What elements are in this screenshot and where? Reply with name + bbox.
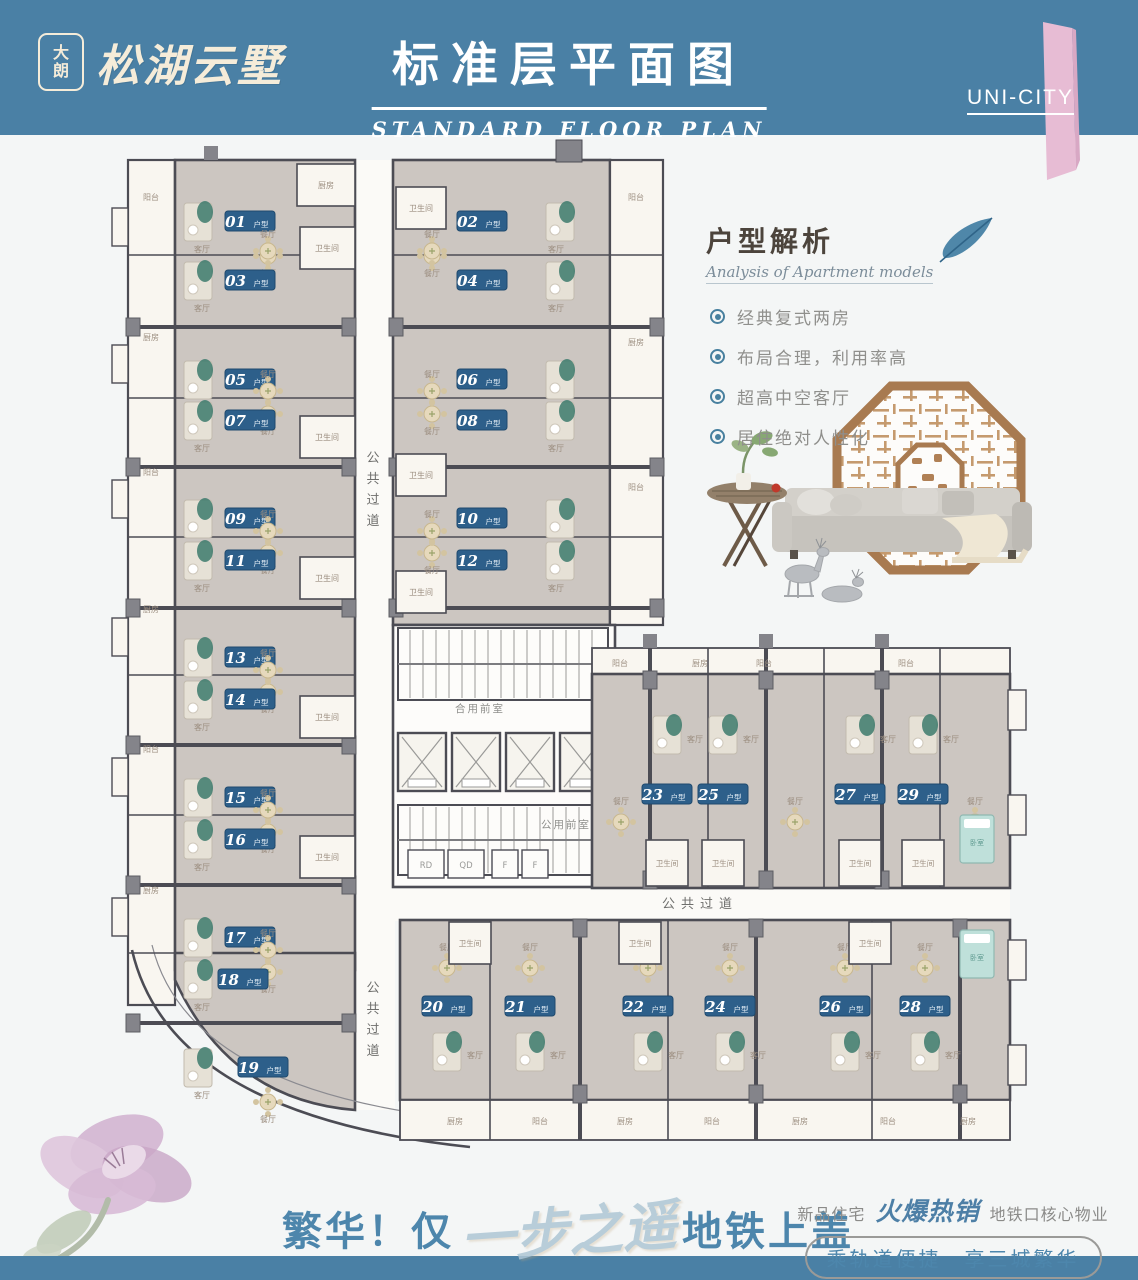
svg-text:户型: 户型	[254, 278, 269, 288]
svg-text:餐厅: 餐厅	[424, 269, 440, 278]
svg-text:12: 12	[457, 552, 478, 570]
svg-text:餐厅: 餐厅	[424, 427, 440, 436]
svg-text:客厅: 客厅	[467, 1050, 483, 1060]
svg-text:户型: 户型	[727, 792, 742, 802]
svg-text:17: 17	[225, 929, 246, 947]
svg-text:24: 24	[704, 998, 726, 1016]
svg-text:卫生间: 卫生间	[849, 858, 872, 868]
svg-text:户型: 户型	[652, 1004, 667, 1014]
logo-badge-icon: 大 朗	[38, 33, 84, 91]
svg-text:共: 共	[366, 1002, 379, 1017]
svg-text:14: 14	[225, 691, 246, 709]
svg-text:客厅: 客厅	[194, 303, 210, 313]
svg-text:公: 公	[366, 981, 379, 996]
svg-text:餐厅: 餐厅	[260, 370, 276, 379]
sofa-glyph	[184, 400, 213, 440]
svg-text:户型: 户型	[247, 977, 262, 987]
svg-text:餐厅: 餐厅	[260, 789, 276, 798]
svg-text:户型: 户型	[927, 792, 942, 802]
svg-text:阳台: 阳台	[898, 658, 914, 668]
svg-text:厨房: 厨房	[960, 1116, 976, 1126]
svg-text:阳台: 阳台	[143, 192, 159, 202]
svg-text:阳台: 阳台	[143, 467, 159, 477]
svg-text:户型: 户型	[734, 1004, 749, 1014]
svg-text:户型: 户型	[486, 377, 501, 387]
bottom-tagline: 繁华！仅 一步之遥 地铁上盖	[282, 1188, 854, 1267]
tagline-script: 一步之遥	[458, 1181, 679, 1275]
svg-text:客厅: 客厅	[750, 1050, 766, 1060]
svg-text:餐厅: 餐厅	[424, 370, 440, 379]
svg-text:户型: 户型	[451, 1004, 466, 1014]
promo-suffix: 地铁口核心物业	[990, 1205, 1109, 1224]
sofa-glyph	[184, 498, 213, 538]
svg-text:餐厅: 餐厅	[260, 230, 276, 239]
svg-text:客厅: 客厅	[945, 1050, 961, 1060]
promo-prefix: 新品住宅	[797, 1205, 865, 1224]
svg-text:客厅: 客厅	[194, 722, 210, 732]
svg-text:08: 08	[457, 412, 478, 430]
uni-city-label: UNI-CITY	[967, 86, 1074, 115]
svg-text:道: 道	[366, 514, 379, 529]
svg-text:卫生间: 卫生间	[409, 470, 433, 480]
sofa-glyph	[184, 1047, 213, 1087]
svg-text:阳台: 阳台	[628, 192, 644, 202]
svg-text:厨房: 厨房	[628, 337, 644, 347]
svg-text:客厅: 客厅	[550, 1050, 566, 1060]
analysis-bullet: 居住绝对人性化	[710, 424, 986, 449]
svg-text:公: 公	[366, 451, 379, 466]
sofa-glyph	[184, 201, 213, 241]
svg-text:07: 07	[225, 412, 246, 430]
svg-text:公用前室: 公用前室	[541, 818, 591, 831]
sofa-glyph	[184, 917, 213, 957]
svg-text:餐厅: 餐厅	[424, 510, 440, 519]
tagline-left: 繁华！仅	[282, 1199, 454, 1257]
svg-text:厨房: 厨房	[143, 332, 159, 342]
svg-text:户型: 户型	[267, 1065, 282, 1075]
svg-text:厨房: 厨房	[447, 1116, 463, 1126]
sofa-glyph	[911, 1031, 940, 1071]
svg-text:户型: 户型	[486, 219, 501, 229]
svg-text:25: 25	[697, 786, 719, 804]
promo-hot-text: 火爆热销	[875, 1197, 979, 1226]
svg-text:20: 20	[421, 998, 443, 1016]
analysis-subtitle: Analysis of Apartment models	[706, 263, 933, 284]
sofa-icon	[772, 488, 1032, 560]
svg-text:02: 02	[457, 213, 478, 231]
svg-text:21: 21	[504, 998, 526, 1016]
svg-text:户型: 户型	[486, 418, 501, 428]
svg-text:04: 04	[457, 272, 478, 290]
bullet-text: 超高中空客厅	[737, 384, 851, 409]
svg-text:阳台: 阳台	[532, 1116, 548, 1126]
svg-text:05: 05	[225, 371, 246, 389]
svg-text:11: 11	[225, 552, 246, 570]
svg-text:厨房: 厨房	[318, 180, 334, 190]
analysis-bullet: 布局合理，利用率高	[710, 344, 986, 369]
logo-badge-char-2: 朗	[53, 62, 69, 80]
svg-text:卫生间: 卫生间	[629, 938, 652, 948]
svg-text:卧室: 卧室	[970, 953, 984, 962]
svg-text:卫生间: 卫生间	[315, 432, 339, 442]
svg-text:户型: 户型	[254, 418, 269, 428]
page-subtitle: STANDARD FLOOR PLAN	[372, 117, 767, 142]
bullet-text: 布局合理，利用率高	[737, 344, 908, 369]
svg-text:卫生间: 卫生间	[315, 852, 339, 862]
sofa-glyph	[184, 637, 213, 677]
svg-text:阳台: 阳台	[612, 658, 628, 668]
svg-text:户型: 户型	[254, 219, 269, 229]
svg-text:户型: 户型	[671, 792, 686, 802]
svg-text:01: 01	[225, 213, 246, 231]
apartment-analysis-panel: 户型解析 Analysis of Apartment models 经典复式两房…	[706, 220, 986, 464]
svg-text:卫生间: 卫生间	[409, 203, 433, 213]
svg-text:客厅: 客厅	[194, 244, 210, 254]
analysis-bullet-list: 经典复式两房 布局合理，利用率高 超高中空客厅 居住绝对人性化	[710, 304, 986, 449]
sofa-glyph	[546, 498, 575, 538]
svg-text:户型: 户型	[486, 558, 501, 568]
sofa-glyph	[546, 359, 575, 399]
svg-text:27: 27	[834, 786, 856, 804]
sofa-glyph	[909, 714, 938, 754]
sofa-glyph	[516, 1031, 545, 1071]
brand-logo: 大 朗 松湖云墅	[38, 30, 284, 94]
sofa-glyph	[846, 714, 875, 754]
svg-text:餐厅: 餐厅	[424, 230, 440, 239]
svg-text:阳台: 阳台	[143, 744, 159, 754]
svg-text:09: 09	[225, 510, 246, 528]
svg-text:阳台: 阳台	[880, 1116, 896, 1126]
sofa-glyph	[546, 540, 575, 580]
svg-text:共: 共	[366, 472, 379, 487]
svg-text:餐厅: 餐厅	[260, 1115, 276, 1124]
sofa-glyph	[653, 714, 682, 754]
svg-text:06: 06	[457, 371, 478, 389]
svg-text:客厅: 客厅	[668, 1050, 684, 1060]
svg-text:户型: 户型	[486, 278, 501, 288]
svg-text:餐厅: 餐厅	[722, 943, 738, 952]
svg-text:过: 过	[366, 493, 379, 508]
svg-text:道: 道	[366, 1044, 379, 1059]
svg-text:餐厅: 餐厅	[260, 649, 276, 658]
sofa-glyph	[184, 679, 213, 719]
svg-text:客厅: 客厅	[548, 303, 564, 313]
svg-text:03: 03	[225, 272, 246, 290]
svg-text:19: 19	[238, 1059, 259, 1077]
svg-text:餐厅: 餐厅	[613, 797, 629, 806]
svg-text:卫生间: 卫生间	[912, 858, 935, 868]
svg-text:户型: 户型	[254, 837, 269, 847]
svg-text:餐厅: 餐厅	[260, 929, 276, 938]
svg-text:F: F	[533, 861, 538, 871]
feather-icon	[922, 214, 996, 266]
promo-pill: 乘轨道便捷 享三城繁华	[805, 1236, 1102, 1279]
sofa-glyph	[709, 714, 738, 754]
svg-text:餐厅: 餐厅	[917, 943, 933, 952]
svg-text:卫生间: 卫生间	[315, 712, 339, 722]
bullet-target-icon	[710, 429, 725, 444]
svg-text:客厅: 客厅	[548, 244, 564, 254]
promo-block: 新品住宅 火爆热销 地铁口核心物业 乘轨道便捷 享三城繁华	[788, 1192, 1118, 1279]
bullet-text: 居住绝对人性化	[737, 424, 870, 449]
logo-badge-char-1: 大	[53, 44, 69, 62]
svg-text:餐厅: 餐厅	[424, 566, 440, 575]
sofa-glyph	[546, 260, 575, 300]
svg-text:卫生间: 卫生间	[459, 938, 482, 948]
sofa-glyph	[184, 540, 213, 580]
svg-text:F: F	[503, 861, 508, 871]
sofa-glyph	[716, 1031, 745, 1071]
svg-text:客厅: 客厅	[548, 443, 564, 453]
page-title: 标准层平面图	[372, 26, 767, 110]
sofa-glyph	[184, 777, 213, 817]
page-title-block: 标准层平面图 STANDARD FLOOR PLAN	[372, 26, 767, 142]
svg-text:16: 16	[225, 831, 246, 849]
sofa-glyph	[184, 959, 213, 999]
svg-text:客厅: 客厅	[194, 583, 210, 593]
svg-text:厨房: 厨房	[692, 658, 708, 668]
svg-text:RD: RD	[420, 861, 433, 871]
svg-text:户型: 户型	[864, 792, 879, 802]
svg-text:户型: 户型	[849, 1004, 864, 1014]
svg-text:卫生间: 卫生间	[712, 858, 735, 868]
svg-text:客厅: 客厅	[687, 734, 703, 744]
sofa-glyph	[546, 201, 575, 241]
svg-text:户型: 户型	[254, 697, 269, 707]
analysis-header: 户型解析 Analysis of Apartment models	[706, 220, 986, 284]
sofa-glyph	[634, 1031, 663, 1071]
bullet-target-icon	[710, 389, 725, 404]
flower-decoration	[12, 1082, 207, 1272]
svg-text:客厅: 客厅	[194, 1002, 210, 1012]
promo-line: 新品住宅 火爆热销 地铁口核心物业	[788, 1192, 1118, 1228]
svg-text:过: 过	[366, 1023, 379, 1038]
svg-text:13: 13	[225, 649, 246, 667]
bullet-target-icon	[710, 349, 725, 364]
logo-name: 松湖云墅	[96, 30, 284, 94]
svg-text:厨房: 厨房	[143, 604, 159, 614]
analysis-bullet: 超高中空客厅	[710, 384, 986, 409]
svg-text:卫生间: 卫生间	[859, 938, 882, 948]
sofa-glyph	[433, 1031, 462, 1071]
sofa-glyph	[184, 260, 213, 300]
svg-text:卫生间: 卫生间	[656, 858, 679, 868]
svg-text:阳台: 阳台	[756, 658, 772, 668]
svg-text:户型: 户型	[254, 558, 269, 568]
svg-text:客厅: 客厅	[194, 862, 210, 872]
svg-text:卫生间: 卫生间	[315, 243, 339, 253]
sofa-glyph	[831, 1031, 860, 1071]
svg-text:餐厅: 餐厅	[522, 943, 538, 952]
svg-text:15: 15	[225, 789, 246, 807]
poster-page: 大 朗 松湖云墅 标准层平面图 STANDARD FLOOR PLAN UNI-…	[0, 0, 1138, 1280]
svg-text:卧室: 卧室	[970, 838, 984, 847]
svg-text:客厅: 客厅	[880, 734, 896, 744]
sofa-glyph	[184, 819, 213, 859]
svg-text:餐厅: 餐厅	[967, 797, 983, 806]
svg-text:阳台: 阳台	[704, 1116, 720, 1126]
svg-text:客厅: 客厅	[743, 734, 759, 744]
svg-text:29: 29	[897, 786, 919, 804]
svg-text:户型: 户型	[929, 1004, 944, 1014]
svg-text:28: 28	[899, 998, 921, 1016]
svg-text:18: 18	[218, 971, 239, 989]
svg-text:10: 10	[457, 510, 478, 528]
svg-text:餐厅: 餐厅	[787, 797, 803, 806]
bullet-text: 经典复式两房	[737, 304, 851, 329]
svg-text:公共过道: 公共过道	[662, 897, 738, 912]
svg-text:户型: 户型	[534, 1004, 549, 1014]
svg-text:QD: QD	[459, 861, 473, 871]
sofa-glyph	[546, 400, 575, 440]
bullet-target-icon	[710, 309, 725, 324]
sofa-glyph	[184, 359, 213, 399]
svg-text:客厅: 客厅	[943, 734, 959, 744]
svg-text:卫生间: 卫生间	[315, 573, 339, 583]
svg-text:阳台: 阳台	[628, 482, 644, 492]
svg-text:餐厅: 餐厅	[260, 510, 276, 519]
svg-text:23: 23	[641, 786, 663, 804]
svg-text:厨房: 厨房	[617, 1116, 633, 1126]
svg-text:客厅: 客厅	[865, 1050, 881, 1060]
svg-text:合用前室: 合用前室	[455, 702, 505, 715]
svg-text:户型: 户型	[486, 516, 501, 526]
svg-text:卫生间: 卫生间	[409, 587, 433, 597]
svg-text:客厅: 客厅	[548, 583, 564, 593]
svg-text:客厅: 客厅	[194, 443, 210, 453]
svg-text:厨房: 厨房	[792, 1116, 808, 1126]
svg-text:厨房: 厨房	[143, 885, 159, 895]
svg-text:26: 26	[819, 998, 841, 1016]
analysis-bullet: 经典复式两房	[710, 304, 986, 329]
svg-text:22: 22	[622, 998, 644, 1016]
